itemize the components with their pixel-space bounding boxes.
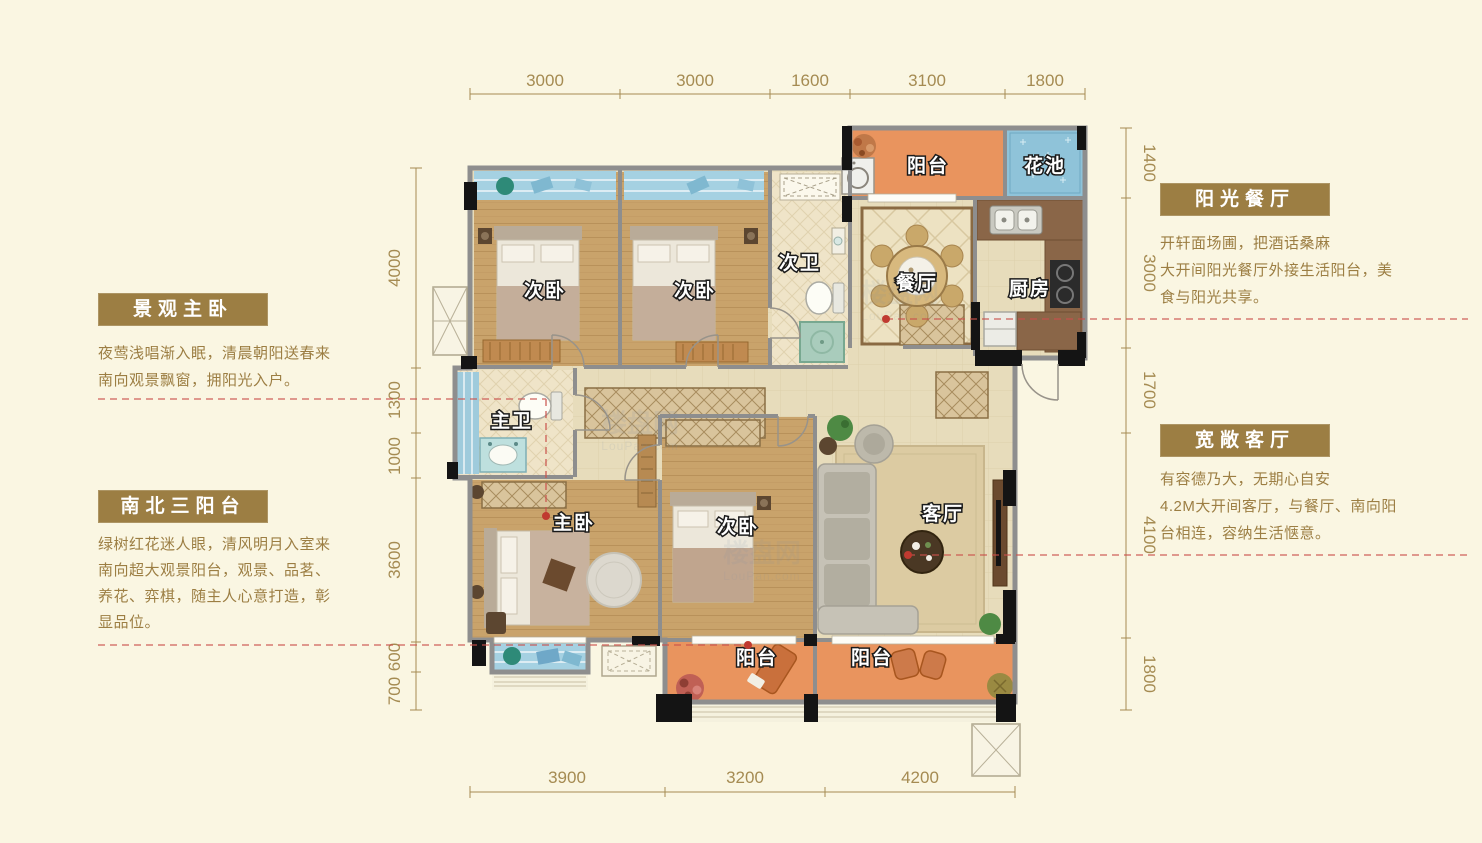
washbasin-icon xyxy=(480,438,526,472)
toilet-icon xyxy=(806,282,844,314)
callout-line: 南向超大观景阳台，观景、品茗、 xyxy=(98,558,428,584)
rug-icon xyxy=(587,553,641,607)
watermark-subtext: LouPan.com xyxy=(723,569,800,583)
plant-icon xyxy=(841,420,849,428)
callout-line: 养花、弈棋，随主人心意打造，彰 xyxy=(98,584,428,610)
room-label-dining: 餐厅 xyxy=(896,271,938,294)
callout-text-master-bedroom: 夜莺浅唱渐入眠，清晨朝阳送春来 南向观景飘窗，拥阳光入户。 xyxy=(98,340,428,394)
callout-title-balconies: 南北三阳台 xyxy=(98,490,268,523)
room-label-master: 主卧 xyxy=(553,512,595,534)
dim-left-5: 600 xyxy=(385,643,404,671)
stove-icon xyxy=(1050,260,1080,308)
callout-line: 4.2M大开间客厅，与餐厅、南向阳 xyxy=(1160,493,1482,520)
callout-text-living: 有容德乃大，无期心自安 4.2M大开间客厅，与餐厅、南向阳 台相连，容纳生活惬意… xyxy=(1160,466,1482,547)
callout-line: 显品位。 xyxy=(98,610,428,636)
watermark-subtext: LouPan.com xyxy=(601,439,678,453)
callout-text-balconies: 绿树红花迷人眼，清风明月入室来 南向超大观景阳台，观景、品茗、 养花、弈棋，随主… xyxy=(98,532,428,636)
dim-bottom-3: 4200 xyxy=(901,768,939,787)
dim-bottom-1: 3900 xyxy=(548,768,586,787)
plant-icon xyxy=(496,177,514,195)
dim-right-1: 1400 xyxy=(1140,144,1159,182)
watermark-subtext: LouPan.com xyxy=(861,309,938,323)
callout-line: 南向观景飘窗，拥阳光入户。 xyxy=(98,367,428,394)
plant-icon xyxy=(979,613,1001,635)
plant-icon xyxy=(503,647,521,665)
dim-top-2: 3000 xyxy=(676,71,714,90)
room-label-kitchen: 厨房 xyxy=(1009,277,1051,300)
callout-line: 开轩面场圃，把酒话桑麻 xyxy=(1160,230,1482,257)
callout-title-master-bedroom: 景观主卧 xyxy=(98,293,268,326)
room-label-bath-master: 主卫 xyxy=(491,410,533,432)
dim-right-2: 3000 xyxy=(1140,254,1159,292)
callout-line: 夜莺浅唱渐入眠，清晨朝阳送春来 xyxy=(98,340,428,367)
window-symbol xyxy=(780,174,840,200)
dim-top-3: 1600 xyxy=(791,71,829,90)
room-label-balcony-top: 阳台 xyxy=(907,154,949,177)
room-label-flower-pond: 花池 xyxy=(1024,154,1066,177)
plant-icon xyxy=(827,415,853,441)
callout-title-living: 宽敞客厅 xyxy=(1160,424,1330,457)
dim-top-4: 3100 xyxy=(908,71,946,90)
room-label-balcony-left: 阳台 xyxy=(736,646,778,669)
watermark-text: 楼盘网 xyxy=(601,408,679,438)
room-label-balcony-right: 阳台 xyxy=(851,646,893,669)
dim-top-5: 1800 xyxy=(1026,71,1064,90)
washbasin-icon xyxy=(832,228,845,254)
dim-left-6: 700 xyxy=(385,677,404,705)
sink-icon xyxy=(990,206,1042,234)
callout-text-dining: 开轩面场圃，把酒话桑麻 大开间阳光餐厅外接生活阳台，美 食与阳光共享。 xyxy=(1160,230,1482,311)
room-label-bedroom-b: 次卧 xyxy=(674,279,716,302)
room-label-living: 客厅 xyxy=(922,502,964,525)
room-label-bedroom-c: 次卧 xyxy=(717,515,759,538)
plant-icon xyxy=(852,134,876,158)
callout-line: 台相连，容纳生活惬意。 xyxy=(1160,520,1482,547)
room-label-bath-second: 次卫 xyxy=(779,251,821,274)
shower-icon xyxy=(800,322,844,362)
dim-left-1: 4000 xyxy=(385,249,404,287)
dim-right-4: 4100 xyxy=(1140,516,1159,554)
dim-right-5: 1800 xyxy=(1140,655,1159,693)
callout-line: 食与阳光共享。 xyxy=(1160,284,1482,311)
callout-line: 有容德乃大，无期心自安 xyxy=(1160,466,1482,493)
floor-plan: 楼盘网 LouPan.com 楼盘网 LouPan.com 楼盘网 LouPan… xyxy=(433,126,1086,776)
dim-left-3: 1000 xyxy=(385,437,404,475)
fridge-icon xyxy=(984,312,1016,346)
room-label-bedroom-a: 次卧 xyxy=(524,279,566,302)
dim-top-1: 3000 xyxy=(526,71,564,90)
bench-icon xyxy=(483,340,560,362)
floor-plan-canvas: 3000 3000 1600 3100 1800 3900 3200 4200 … xyxy=(0,0,1482,843)
dim-bottom-2: 3200 xyxy=(726,768,764,787)
callout-title-dining: 阳光餐厅 xyxy=(1160,183,1330,216)
floor-plan-page: 3000 3000 1600 3100 1800 3900 3200 4200 … xyxy=(0,0,1482,843)
watermark-text: 楼盘网 xyxy=(723,538,801,568)
callout-line: 大开间阳光餐厅外接生活阳台，美 xyxy=(1160,257,1482,284)
callout-line: 绿树红花迷人眼，清风明月入室来 xyxy=(98,532,428,558)
dim-right-3: 1700 xyxy=(1140,371,1159,409)
